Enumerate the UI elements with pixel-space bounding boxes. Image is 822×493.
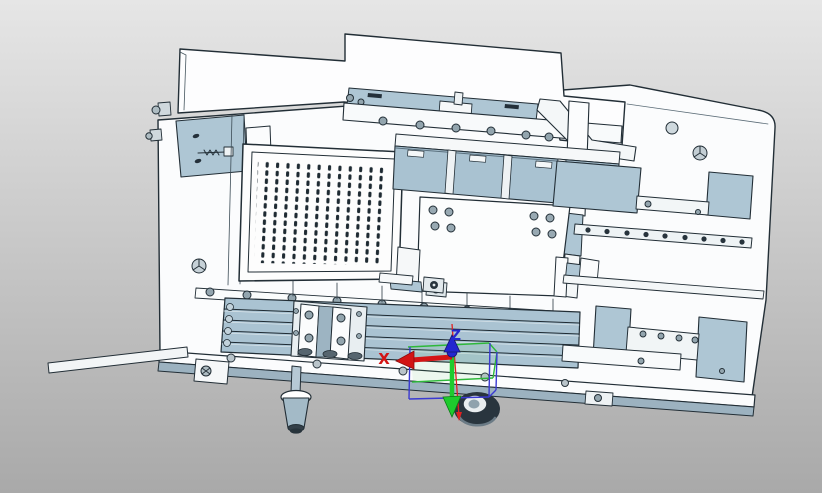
right-foot-bracket: [585, 391, 613, 406]
axis-z-label: Z: [451, 328, 461, 344]
slider-block[interactable]: [291, 301, 367, 361]
assembly-3d-view: X Z: [0, 0, 822, 493]
axis-x-label: X: [378, 350, 390, 368]
cad-viewport[interactable]: X Z: [0, 0, 822, 493]
perforated-plate[interactable]: [239, 144, 403, 281]
